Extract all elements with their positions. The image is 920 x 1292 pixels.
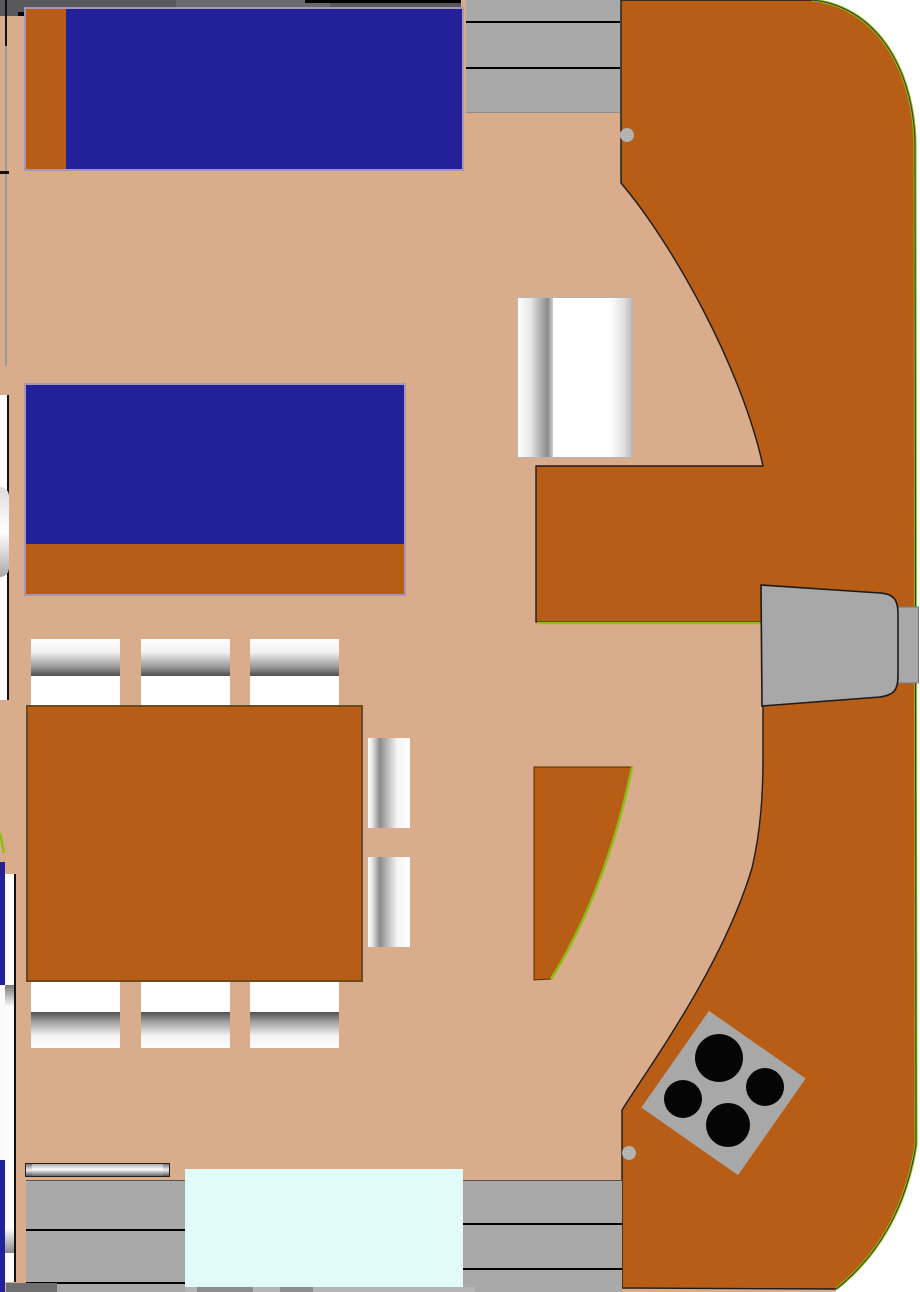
steps-bottom-left — [26, 1180, 185, 1292]
bottom-left-dark-block — [6, 1283, 57, 1292]
chair-backrest — [250, 1012, 339, 1048]
locker-door — [517, 297, 633, 458]
burner — [664, 1080, 702, 1118]
floor-plan — [0, 0, 920, 1292]
port-hull-tick — [0, 833, 4, 853]
locker-door-right-panel — [553, 298, 632, 457]
side-gate — [897, 607, 919, 683]
side-berth-footboard — [26, 544, 404, 594]
chair-backrest — [31, 1012, 120, 1048]
forward-berth-mattress — [66, 9, 462, 169]
locker-door-left-panel — [518, 298, 553, 457]
chair-backrest — [250, 639, 339, 676]
under-panel-strip — [185, 1287, 475, 1292]
counter-dot — [620, 128, 634, 142]
step-tread-line — [466, 21, 620, 23]
helm-seat — [761, 585, 898, 706]
rail-end-cap — [26, 1164, 32, 1176]
step-tread-line — [463, 1223, 622, 1225]
chair-seat — [31, 676, 120, 705]
chair-backrest — [31, 639, 120, 676]
counter-dot — [622, 1146, 636, 1160]
chair-backrest — [141, 639, 230, 676]
burner — [695, 1034, 743, 1082]
side-berth-mattress — [26, 385, 404, 544]
step-tread-line — [463, 1268, 622, 1270]
counter-dots — [620, 128, 636, 1160]
galley-layer — [0, 0, 920, 1292]
chair-seat — [141, 982, 230, 1012]
burner — [746, 1068, 784, 1106]
side-berth — [24, 383, 406, 596]
dining-chair-top-1 — [31, 639, 120, 705]
dining-chair-bottom-1 — [31, 982, 120, 1048]
chair-seat — [250, 982, 339, 1012]
burner — [706, 1103, 750, 1147]
steps-bottom-right — [463, 1180, 622, 1292]
step-tread-line — [466, 67, 620, 69]
chair-seat — [250, 676, 339, 705]
grab-rail — [25, 1163, 170, 1177]
dining-chair-bottom-2 — [141, 982, 230, 1048]
chair-seat — [141, 676, 230, 705]
forward-berth-headboard — [26, 9, 66, 169]
dining-table — [26, 705, 363, 982]
dining-chair-top-3 — [250, 639, 339, 705]
dining-chair-top-2 — [141, 639, 230, 705]
strip-shadow — [280, 1287, 313, 1292]
dining-chair-bottom-3 — [250, 982, 339, 1048]
forward-berth — [24, 7, 464, 171]
dining-chair-right-1 — [368, 738, 410, 828]
skylight-panel — [185, 1169, 463, 1287]
dining-chair-right-2 — [368, 857, 410, 947]
curved-counter-wedge — [534, 767, 632, 980]
rail-end-cap — [163, 1164, 169, 1176]
strip-shadow — [197, 1287, 253, 1292]
companionway-steps-top — [466, 0, 620, 113]
chair-seat — [31, 982, 120, 1012]
chair-backrest — [141, 1012, 230, 1048]
step-tread-line — [26, 1229, 185, 1231]
